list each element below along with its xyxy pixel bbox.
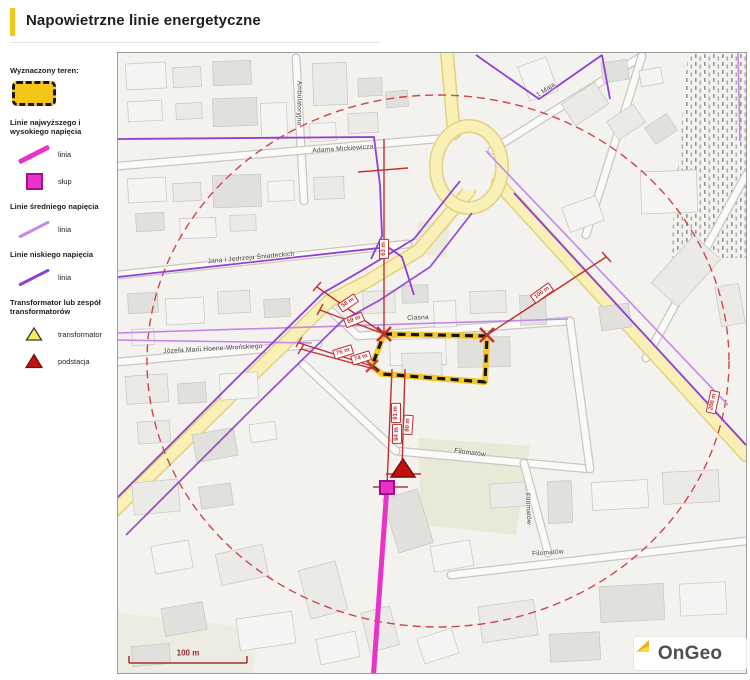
legend-mv-line-item: linia: [10, 220, 112, 238]
legend-mv-title: Linie średniego napięcia: [10, 202, 112, 211]
hv-line-swatch: [18, 144, 51, 164]
transformer-triangle-icon: [25, 326, 43, 342]
title-accent-bar: [10, 8, 15, 36]
mv-line-swatch: [18, 220, 49, 238]
mv-line-label: linia: [58, 225, 71, 234]
hv-pole-label: słup: [58, 177, 72, 186]
report-header: Napowietrzne linie energetyczne: [10, 6, 380, 43]
legend-hv-pole-item: słup: [10, 172, 112, 190]
map-legend: Wyznaczony teren: Linie najwyższego i wy…: [10, 54, 112, 379]
lv-line-label: linia: [58, 273, 71, 282]
designated-area-swatch: [12, 81, 56, 106]
legend-transformer-title: Transformator lub zespół transformatorów: [10, 298, 112, 316]
substation-label: podstacja: [58, 357, 90, 366]
lv-line-swatch: [18, 268, 49, 286]
legend-transformer-item: transformator: [10, 325, 112, 343]
substation-triangle-icon: [25, 353, 43, 369]
report-page: Napowietrzne linie energetyczne Wyznaczo…: [0, 0, 750, 680]
legend-lv-title: Linie niskiego napięcia: [10, 250, 112, 259]
hv-pole-swatch: [26, 173, 43, 190]
legend-area-title: Wyznaczony teren:: [10, 66, 112, 75]
hv-line-label: linia: [58, 150, 71, 159]
map-canvas: Ambulatoryjna Adama Mickiewicza Jana i J…: [117, 52, 747, 674]
legend-hv-title: Linie najwyższego i wysokiego napięcia: [10, 118, 112, 136]
legend-hv-line-item: linia: [10, 145, 112, 163]
hv-pole-symbol: [380, 481, 394, 494]
map-drawing: [118, 53, 746, 673]
legend-lv-line-item: linia: [10, 268, 112, 286]
page-title: Napowietrzne linie energetyczne: [26, 12, 261, 29]
legend-substation-item: podstacja: [10, 352, 112, 370]
transformer-label: transformator: [58, 330, 102, 339]
